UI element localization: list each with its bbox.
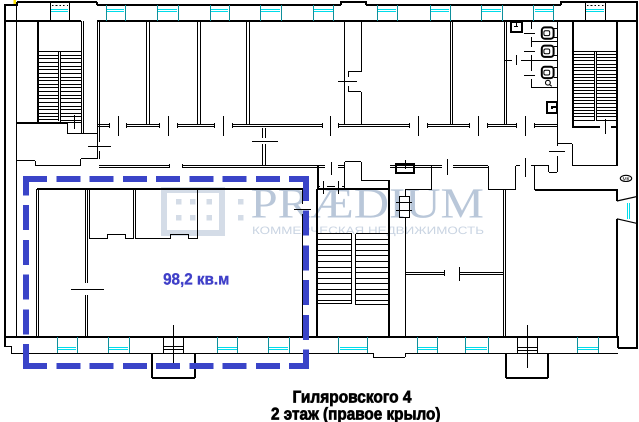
svg-text:Гиляровского 4: Гиляровского 4 <box>293 387 412 406</box>
svg-text:98,2 кв.м: 98,2 кв.м <box>163 271 229 289</box>
svg-text:PRÆDIUM: PRÆDIUM <box>251 181 485 228</box>
svg-text:2 этаж (правое крыло): 2 этаж (правое крыло) <box>271 405 441 422</box>
svg-text:КОММЕРЧЕСКАЯ НЕДВИЖИМОСТЬ: КОММЕРЧЕСКАЯ НЕДВИЖИМОСТЬ <box>252 225 484 237</box>
svg-text:МК: МК <box>622 176 629 182</box>
